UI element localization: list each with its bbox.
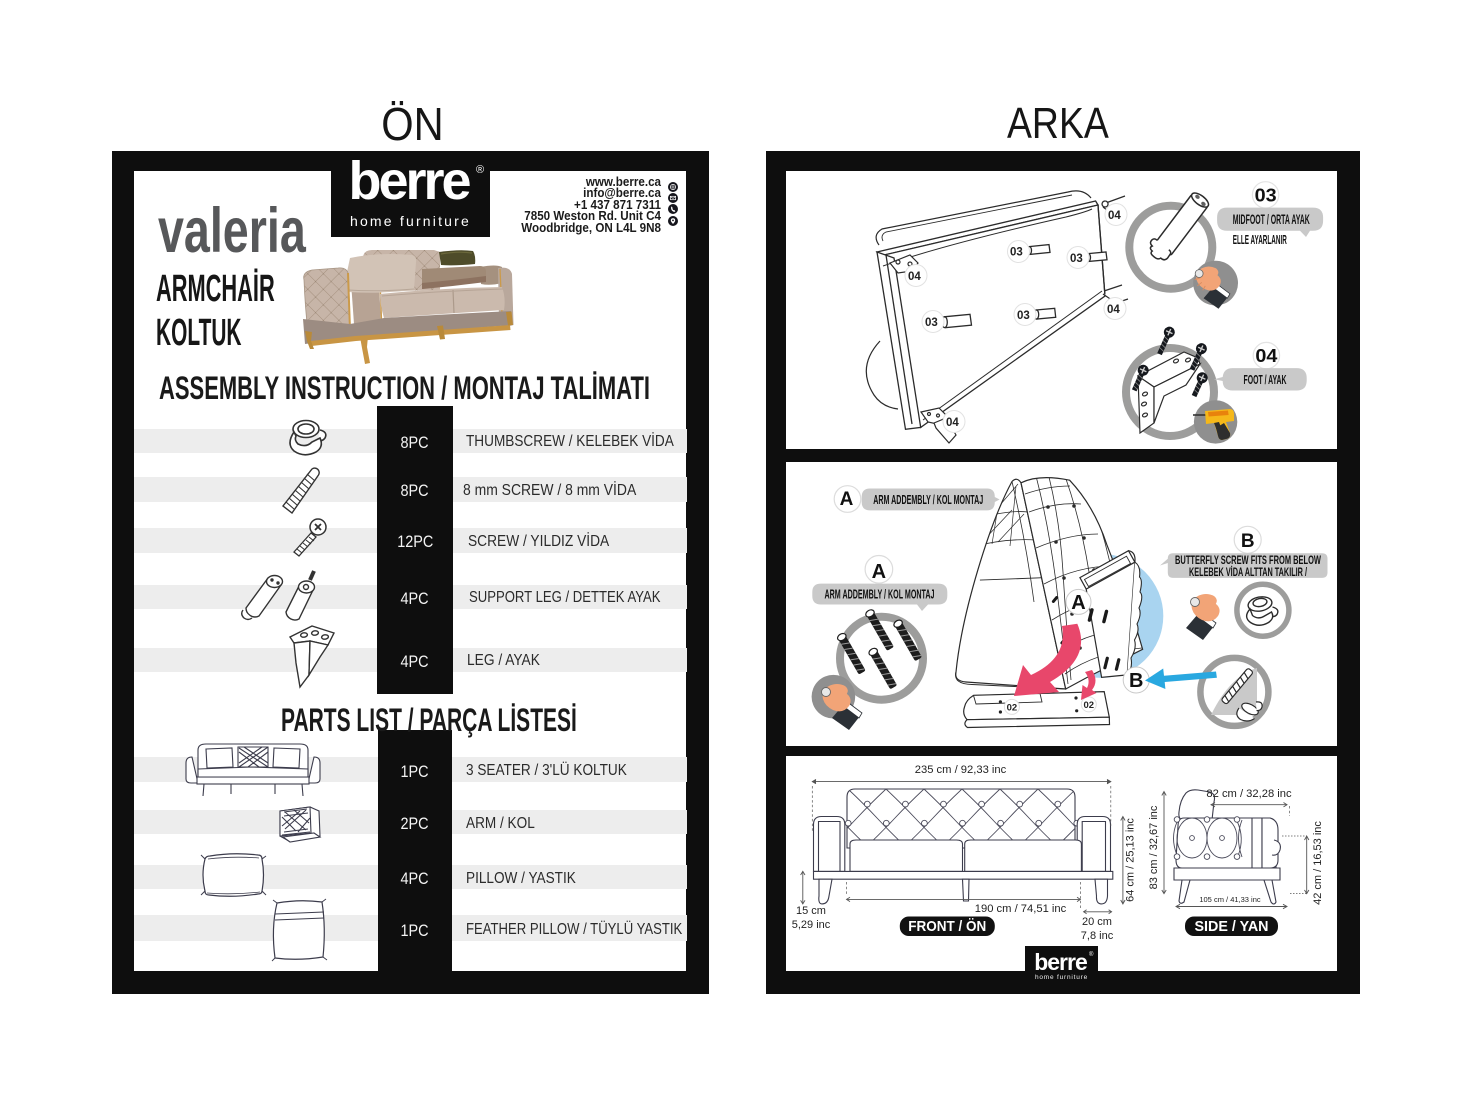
svg-text:FRONT / ÖN: FRONT / ÖN <box>908 918 986 935</box>
svg-text:15 cm: 15 cm <box>796 905 826 917</box>
svg-text:A: A <box>1071 592 1085 614</box>
svg-text:64 cm / 25,13 inc: 64 cm / 25,13 inc <box>1125 818 1137 902</box>
svg-text:83 cm / 32,67 inc: 83 cm / 32,67 inc <box>1148 805 1160 889</box>
svg-text:03: 03 <box>1017 310 1030 322</box>
svg-text:BUTTERFLY SCREW FITS FROM BELO: BUTTERFLY SCREW FITS FROM BELOW <box>1175 555 1321 567</box>
svg-text:42 cm / 16,53 inc: 42 cm / 16,53 inc <box>1312 821 1324 905</box>
svg-text:03: 03 <box>1010 247 1023 259</box>
svg-text:03: 03 <box>1255 184 1277 205</box>
svg-text:03: 03 <box>925 317 938 329</box>
svg-text:235 cm / 92,33 inc: 235 cm / 92,33 inc <box>915 764 1007 776</box>
svg-text:04: 04 <box>1108 210 1121 222</box>
svg-text:105 cm / 41,33 inc: 105 cm / 41,33 inc <box>1199 895 1261 904</box>
svg-text:SIDE / YAN: SIDE / YAN <box>1195 918 1269 935</box>
svg-text:B: B <box>1241 531 1255 552</box>
svg-text:02: 02 <box>1007 702 1018 713</box>
svg-text:02: 02 <box>1084 700 1095 711</box>
svg-text:A: A <box>840 489 854 510</box>
svg-text:7,8 inc: 7,8 inc <box>1081 930 1114 942</box>
svg-text:ARM ADDEMBLY / KOL MONTAJ: ARM ADDEMBLY / KOL MONTAJ <box>825 587 935 602</box>
svg-text:FOOT / AYAK: FOOT / AYAK <box>1244 372 1287 387</box>
svg-text:04: 04 <box>1255 345 1278 366</box>
svg-text:04: 04 <box>946 417 959 429</box>
svg-text:04: 04 <box>908 271 921 283</box>
svg-text:ARM ADDEMBLY / KOL MONTAJ: ARM ADDEMBLY / KOL MONTAJ <box>873 492 983 507</box>
svg-text:03: 03 <box>1070 253 1083 265</box>
svg-text:20 cm: 20 cm <box>1082 916 1112 928</box>
svg-text:MIDFOOT / ORTA AYAK: MIDFOOT / ORTA AYAK <box>1233 212 1310 227</box>
svg-text:KELEBEK VİDA ALTTAN TAKILIR /: KELEBEK VİDA ALTTAN TAKILIR / <box>1189 566 1308 579</box>
svg-text:190 cm / 74,51 inc: 190 cm / 74,51 inc <box>975 903 1067 915</box>
svg-text:A: A <box>872 561 886 583</box>
svg-text:5,29 inc: 5,29 inc <box>792 919 831 931</box>
svg-text:04: 04 <box>1107 304 1120 316</box>
svg-text:ELLE AYARLANIR: ELLE AYARLANIR <box>1233 233 1287 247</box>
svg-text:82 cm / 32,28 inc: 82 cm / 32,28 inc <box>1206 788 1292 800</box>
svg-text:B: B <box>1129 670 1143 692</box>
